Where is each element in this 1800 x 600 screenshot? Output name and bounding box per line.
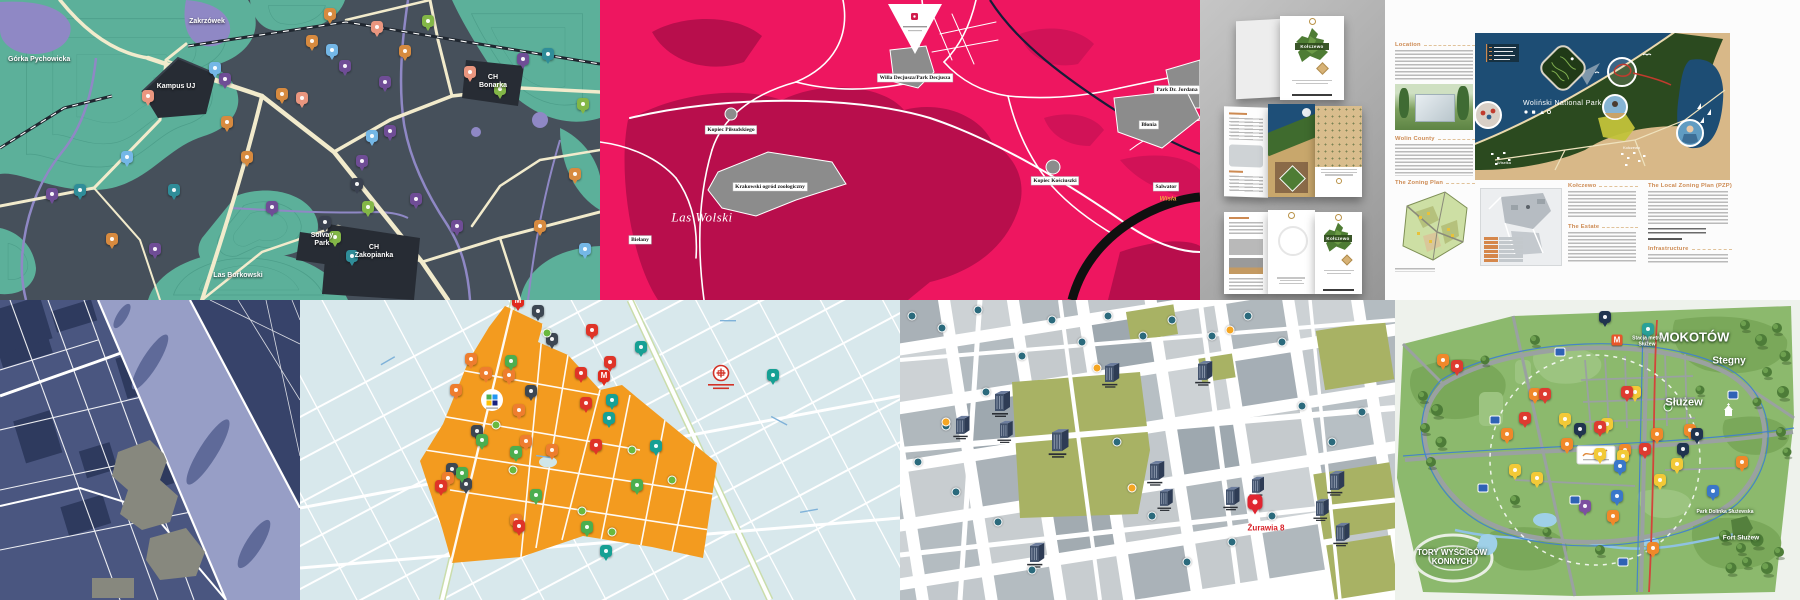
heading-infrastructure: Infrastructure xyxy=(1648,246,1732,252)
poi-pin xyxy=(1621,386,1633,398)
route-shield xyxy=(1490,416,1501,425)
portfolio-collage: ZakrzówekGórka PychowickaKampus UJCH Bon… xyxy=(0,0,1800,600)
cover-text-lines xyxy=(1290,78,1334,85)
location-pin-zurawia xyxy=(1248,495,1263,510)
metro-pin: M xyxy=(512,300,524,307)
bus-pin xyxy=(1599,311,1611,323)
transit-dot xyxy=(1208,332,1217,341)
city-labels-layer: Żurawia 8 xyxy=(900,300,1395,600)
heading-text: The Estate xyxy=(1568,224,1599,230)
panel-heading-bar xyxy=(1229,170,1243,172)
map-tile-cartoon-green[interactable]: M MOKOTÓWStegnySłużewTORY WYŚCIGÓW KONNY… xyxy=(1395,300,1800,600)
hotel-pin xyxy=(346,250,358,262)
heading-text: Infrastructure xyxy=(1648,246,1689,252)
poi-dot xyxy=(1226,326,1235,335)
map-label: Zakrzówek xyxy=(189,18,225,26)
heading-text: The Local Zoning Plan (PZP) xyxy=(1648,183,1732,189)
transit-dot xyxy=(1278,338,1287,347)
transit-dot xyxy=(1104,312,1113,321)
transit-dot xyxy=(994,518,1003,527)
tram-pin xyxy=(219,73,231,85)
transit-dot xyxy=(908,312,917,321)
map-label: Las Borkowski xyxy=(213,272,262,280)
school-pin xyxy=(606,394,618,406)
spread-map-panel-left xyxy=(1268,104,1315,197)
metro-station-icon: M xyxy=(1612,335,1623,346)
brand-seal-icon xyxy=(1335,214,1342,221)
heading-text: The Zoning Plan xyxy=(1395,180,1443,186)
food-pin xyxy=(296,92,308,104)
tram-pin xyxy=(517,53,529,65)
transit-dot xyxy=(1113,438,1122,447)
inset-plan-diamond xyxy=(1279,165,1306,192)
town-label-kolczewo: Kołczewo xyxy=(1623,145,1641,150)
cover-footer-bar xyxy=(1323,289,1354,292)
town-label-wiselka: Wisełka xyxy=(1497,160,1512,165)
tree xyxy=(1399,88,1409,118)
panel-photo xyxy=(1229,239,1263,255)
shop-pin xyxy=(534,220,546,232)
food-pin xyxy=(464,66,476,78)
poi-pin xyxy=(580,397,592,409)
brand-seal-icon xyxy=(1309,18,1316,25)
shop-pin xyxy=(1559,413,1571,425)
route-shield xyxy=(1728,391,1739,400)
map-label: Salwator xyxy=(1153,183,1178,191)
brochure-standing-mockup: Kołczewo xyxy=(1236,16,1352,104)
heading-kolczewo: Kołczewo xyxy=(1568,183,1638,189)
transit-dot xyxy=(1228,538,1237,547)
water-pin xyxy=(326,44,338,56)
zoning-plan-map xyxy=(1393,188,1477,266)
food-pin xyxy=(450,384,462,396)
map-label: Wisła xyxy=(1160,195,1177,202)
school-pin xyxy=(650,440,662,452)
heading-estate: The Estate xyxy=(1568,224,1638,230)
map-label: Górka Pychowicka xyxy=(8,56,70,64)
panel-paragraph xyxy=(1229,117,1263,140)
shop-pin xyxy=(1594,448,1606,460)
paragraph-infrastructure xyxy=(1648,254,1728,264)
map-label: Fort Służew xyxy=(1723,534,1759,541)
food-pin xyxy=(1736,456,1748,468)
bus-pin xyxy=(525,385,537,397)
shop-pin xyxy=(1509,464,1521,476)
heading-zoning: The Zoning Plan xyxy=(1395,180,1475,186)
tram-pin xyxy=(339,60,351,72)
map-label: Krakowski ogród zoologiczny xyxy=(733,183,807,191)
water-pin xyxy=(366,130,378,142)
map-label: Żurawia 8 xyxy=(1248,523,1285,532)
park-pin xyxy=(505,355,517,367)
navy-map-art xyxy=(0,300,300,600)
food-pin xyxy=(142,90,154,102)
stop-dot xyxy=(628,446,637,455)
sport-pin xyxy=(1707,485,1719,497)
map-tile-laswolski-pink[interactable]: Willa Decjusza/Park DecjuszaKopiec Piłsu… xyxy=(600,0,1200,300)
sport-pin xyxy=(1611,490,1623,502)
map-label: Błonia xyxy=(1139,121,1158,129)
poi-pin xyxy=(604,356,616,368)
heading-text: Location xyxy=(1395,42,1421,48)
panel-illustration xyxy=(1229,144,1263,167)
shop-pin xyxy=(241,151,253,163)
bold-note-lines xyxy=(1648,228,1706,234)
panel-paragraph xyxy=(1229,222,1263,236)
school-pin xyxy=(1642,323,1654,335)
park-pin xyxy=(510,446,522,458)
map-label: Bielany xyxy=(629,236,651,244)
sport-pin xyxy=(1614,460,1626,472)
cover-text-lines xyxy=(1322,268,1355,275)
shop-pin xyxy=(276,88,288,100)
krakow-labels-layer: ZakrzówekGórka PychowickaKampus UJCH Bon… xyxy=(0,0,600,300)
poi-pin xyxy=(586,324,598,336)
locator-map xyxy=(1480,188,1562,266)
map-label: Las Wolski xyxy=(671,211,732,226)
cover-title: Kołczewo xyxy=(1324,235,1353,242)
school-pin xyxy=(635,341,647,353)
tram-pin xyxy=(384,125,396,137)
paragraph-estate xyxy=(1568,232,1636,262)
shop-pin xyxy=(569,168,581,180)
brochure-cover-panel: Kołczewo xyxy=(1280,16,1344,100)
park-pin xyxy=(494,83,506,95)
route-shield xyxy=(1555,348,1566,357)
poi-pin xyxy=(513,520,525,532)
glass-building xyxy=(1415,94,1455,122)
park-pin xyxy=(577,98,589,110)
map-tile-orange-district[interactable]: MM xyxy=(300,300,900,600)
service-pin xyxy=(351,178,363,190)
transit-dot xyxy=(1168,316,1177,325)
transit-dot xyxy=(1018,352,1027,361)
stop-dot xyxy=(668,476,677,485)
bus-pin xyxy=(1677,443,1689,455)
stop-dot xyxy=(543,329,552,338)
service-pin xyxy=(319,216,331,228)
map-label: Park Dr. Jordana xyxy=(1154,86,1199,94)
food-pin xyxy=(1607,510,1619,522)
shop-pin xyxy=(1654,474,1666,486)
school-pin xyxy=(600,545,612,557)
stop-dot xyxy=(509,466,518,475)
panel-text-lines xyxy=(1276,276,1306,286)
shop-pin xyxy=(399,45,411,57)
food-pin xyxy=(480,367,492,379)
shop-pin xyxy=(324,8,336,20)
park-pin xyxy=(456,467,468,479)
spread-map-panel-right xyxy=(1315,106,1362,197)
water-pin xyxy=(121,151,133,163)
park-pin xyxy=(362,201,374,213)
bus-pin xyxy=(532,305,544,317)
stop-dot xyxy=(492,421,501,430)
park-pin xyxy=(422,15,434,27)
transit-dot xyxy=(1268,512,1277,521)
paragraph-pzp xyxy=(1648,191,1728,225)
park-pin xyxy=(581,521,593,533)
transit-dot xyxy=(1078,338,1087,347)
back-cover-panel: Kołczewo xyxy=(1315,212,1362,294)
cover-map-shape: Kołczewo xyxy=(1292,26,1332,66)
map-label: Stegny xyxy=(1712,355,1745,367)
district-pins-layer: MM xyxy=(300,300,900,600)
school-pin xyxy=(767,369,779,381)
park-dot xyxy=(1664,403,1673,412)
inset-frame xyxy=(1275,162,1308,193)
panel-paragraph xyxy=(1229,278,1263,290)
map-label: Willa Decjusza/Park Decjusza xyxy=(878,74,953,82)
food-pin xyxy=(520,435,532,447)
park-pin xyxy=(530,489,542,501)
transit-dot xyxy=(1048,316,1057,325)
park-pin xyxy=(476,434,488,446)
map-label: Park Dolinka Służewska xyxy=(1697,510,1754,516)
transit-dot xyxy=(1183,558,1192,567)
route-shield xyxy=(1618,558,1629,567)
hotel-pin xyxy=(542,48,554,60)
tram-pin xyxy=(356,155,368,167)
heading-text: Kołczewo xyxy=(1568,183,1596,189)
heading-pzp: The Local Zoning Plan (PZP) xyxy=(1648,183,1732,189)
map-label: Kampus UJ xyxy=(157,83,196,91)
building-photo xyxy=(1395,84,1473,130)
transit-dot xyxy=(914,458,923,467)
paragraph-county xyxy=(1395,144,1473,176)
transit-dot xyxy=(1328,438,1337,447)
poi-pin xyxy=(1451,360,1463,372)
locator-legend-table xyxy=(1484,236,1523,262)
tram-pin xyxy=(379,76,391,88)
food-pin xyxy=(513,404,525,416)
brochure-back-panel xyxy=(1236,19,1282,99)
park-pin xyxy=(631,479,643,491)
panel-heading-bar xyxy=(1229,112,1247,115)
badge-icon xyxy=(1341,254,1352,265)
transit-dot xyxy=(1298,402,1307,411)
laswolski-labels-layer: Willa Decjusza/Park DecjuszaKopiec Piłsu… xyxy=(600,0,1200,300)
route-shield xyxy=(1570,496,1581,505)
cover-footer-bar xyxy=(1292,94,1332,97)
food-pin xyxy=(1647,542,1659,554)
transit-dot xyxy=(952,488,961,497)
hotel-pin xyxy=(74,184,86,196)
heading-county: Wolin County xyxy=(1395,136,1475,142)
map-legend-box xyxy=(1486,44,1519,62)
panel-heading-bar xyxy=(1229,217,1249,219)
tree xyxy=(1457,86,1469,120)
stop-dot xyxy=(608,528,617,537)
transit-dot xyxy=(1028,566,1037,575)
poi-pin xyxy=(575,367,587,379)
park-map-title: Woliński National Park xyxy=(1523,100,1602,107)
wolinski-park-map: Woliński National Park Wisełka Kołczewo xyxy=(1475,33,1730,180)
transit-dot xyxy=(974,306,983,315)
map-label: TORY WYŚCIGÓW KONNYCH xyxy=(1417,548,1487,566)
brochure-mockup-tile[interactable]: Kołczewo xyxy=(1200,0,1385,300)
map-label: MOKOTÓW xyxy=(1659,331,1730,346)
brand-seal-icon xyxy=(1288,212,1295,219)
tram-pin xyxy=(451,220,463,232)
map-caption xyxy=(1395,268,1435,272)
tram-pin xyxy=(46,188,58,200)
hotel-pin xyxy=(168,184,180,196)
panel-paragraph xyxy=(1229,175,1263,192)
brochure-open-spread-mockup xyxy=(1224,104,1362,200)
heading-location: Location xyxy=(1395,42,1475,48)
food-pin xyxy=(1501,428,1513,440)
poi-dot xyxy=(1128,484,1137,493)
map-tile-krakow-dark[interactable]: ZakrzówekGórka PychowickaKampus UJCH Bon… xyxy=(0,0,600,300)
back-emblem-panel xyxy=(1268,210,1315,294)
poi-pin xyxy=(435,480,447,492)
map-label: CH Zakopianka xyxy=(355,244,394,260)
poi-dot xyxy=(1093,364,1102,373)
transit-dot xyxy=(1148,512,1157,521)
cover-title: Kołczewo xyxy=(1295,43,1329,50)
food-pin xyxy=(1561,438,1573,450)
brochure-open-back-mockup: Kołczewo xyxy=(1224,210,1362,296)
leaflet-spread-tile[interactable]: Location Wolin County The Zoning Plan xyxy=(1385,0,1800,302)
map-tile-navy[interactable] xyxy=(0,300,300,600)
bus-pin xyxy=(1574,423,1586,435)
transit-dot xyxy=(938,324,947,333)
compass-icon xyxy=(1302,108,1311,117)
shop-pin xyxy=(1531,472,1543,484)
poi-pin xyxy=(1539,388,1551,400)
food-pin xyxy=(465,353,477,365)
panel-text-area xyxy=(1315,167,1362,197)
park-pin xyxy=(329,231,341,243)
shop-pin xyxy=(106,233,118,245)
spread-text-panel xyxy=(1224,106,1268,198)
bus-pin xyxy=(1691,428,1703,440)
cover-map-shape: Kołczewo xyxy=(1321,221,1355,255)
transit-dot xyxy=(1244,312,1253,321)
faint-emblem xyxy=(1278,226,1308,256)
shop-pin xyxy=(221,116,233,128)
panel-photo xyxy=(1229,258,1263,274)
map-label: Kopiec Kościuszki xyxy=(1031,177,1078,185)
website-link-line[interactable] xyxy=(1648,238,1682,240)
water-pin xyxy=(579,243,591,255)
transit-dot xyxy=(982,388,991,397)
heading-text: Wolin County xyxy=(1395,136,1435,142)
food-pin xyxy=(546,444,558,456)
water-pin xyxy=(209,62,221,74)
tram-pin xyxy=(149,243,161,255)
poi-dot xyxy=(942,418,951,427)
paragraph-location xyxy=(1395,50,1473,80)
poi-pin xyxy=(1519,412,1531,424)
stop-dot xyxy=(578,507,587,516)
transit-dot xyxy=(1139,332,1148,341)
tram-pin xyxy=(266,201,278,213)
shop-pin xyxy=(306,35,318,47)
food-pin xyxy=(1651,428,1663,440)
transit-dot xyxy=(1358,408,1367,417)
food-pin xyxy=(1437,354,1449,366)
poi-pin xyxy=(590,439,602,451)
culture-pin xyxy=(1579,500,1591,512)
back-text-panel xyxy=(1224,212,1268,294)
map-tile-gray-city[interactable]: Żurawia 8 xyxy=(900,300,1395,600)
poi-pin xyxy=(1639,443,1651,455)
tram-pin xyxy=(410,193,422,205)
poi-pin xyxy=(1594,421,1606,433)
route-shield xyxy=(1478,484,1489,493)
food-pin xyxy=(371,21,383,33)
map-label: Kopiec Piłsudskiego xyxy=(705,126,756,134)
paragraph-kolczewo xyxy=(1568,191,1636,219)
school-pin xyxy=(603,412,615,424)
